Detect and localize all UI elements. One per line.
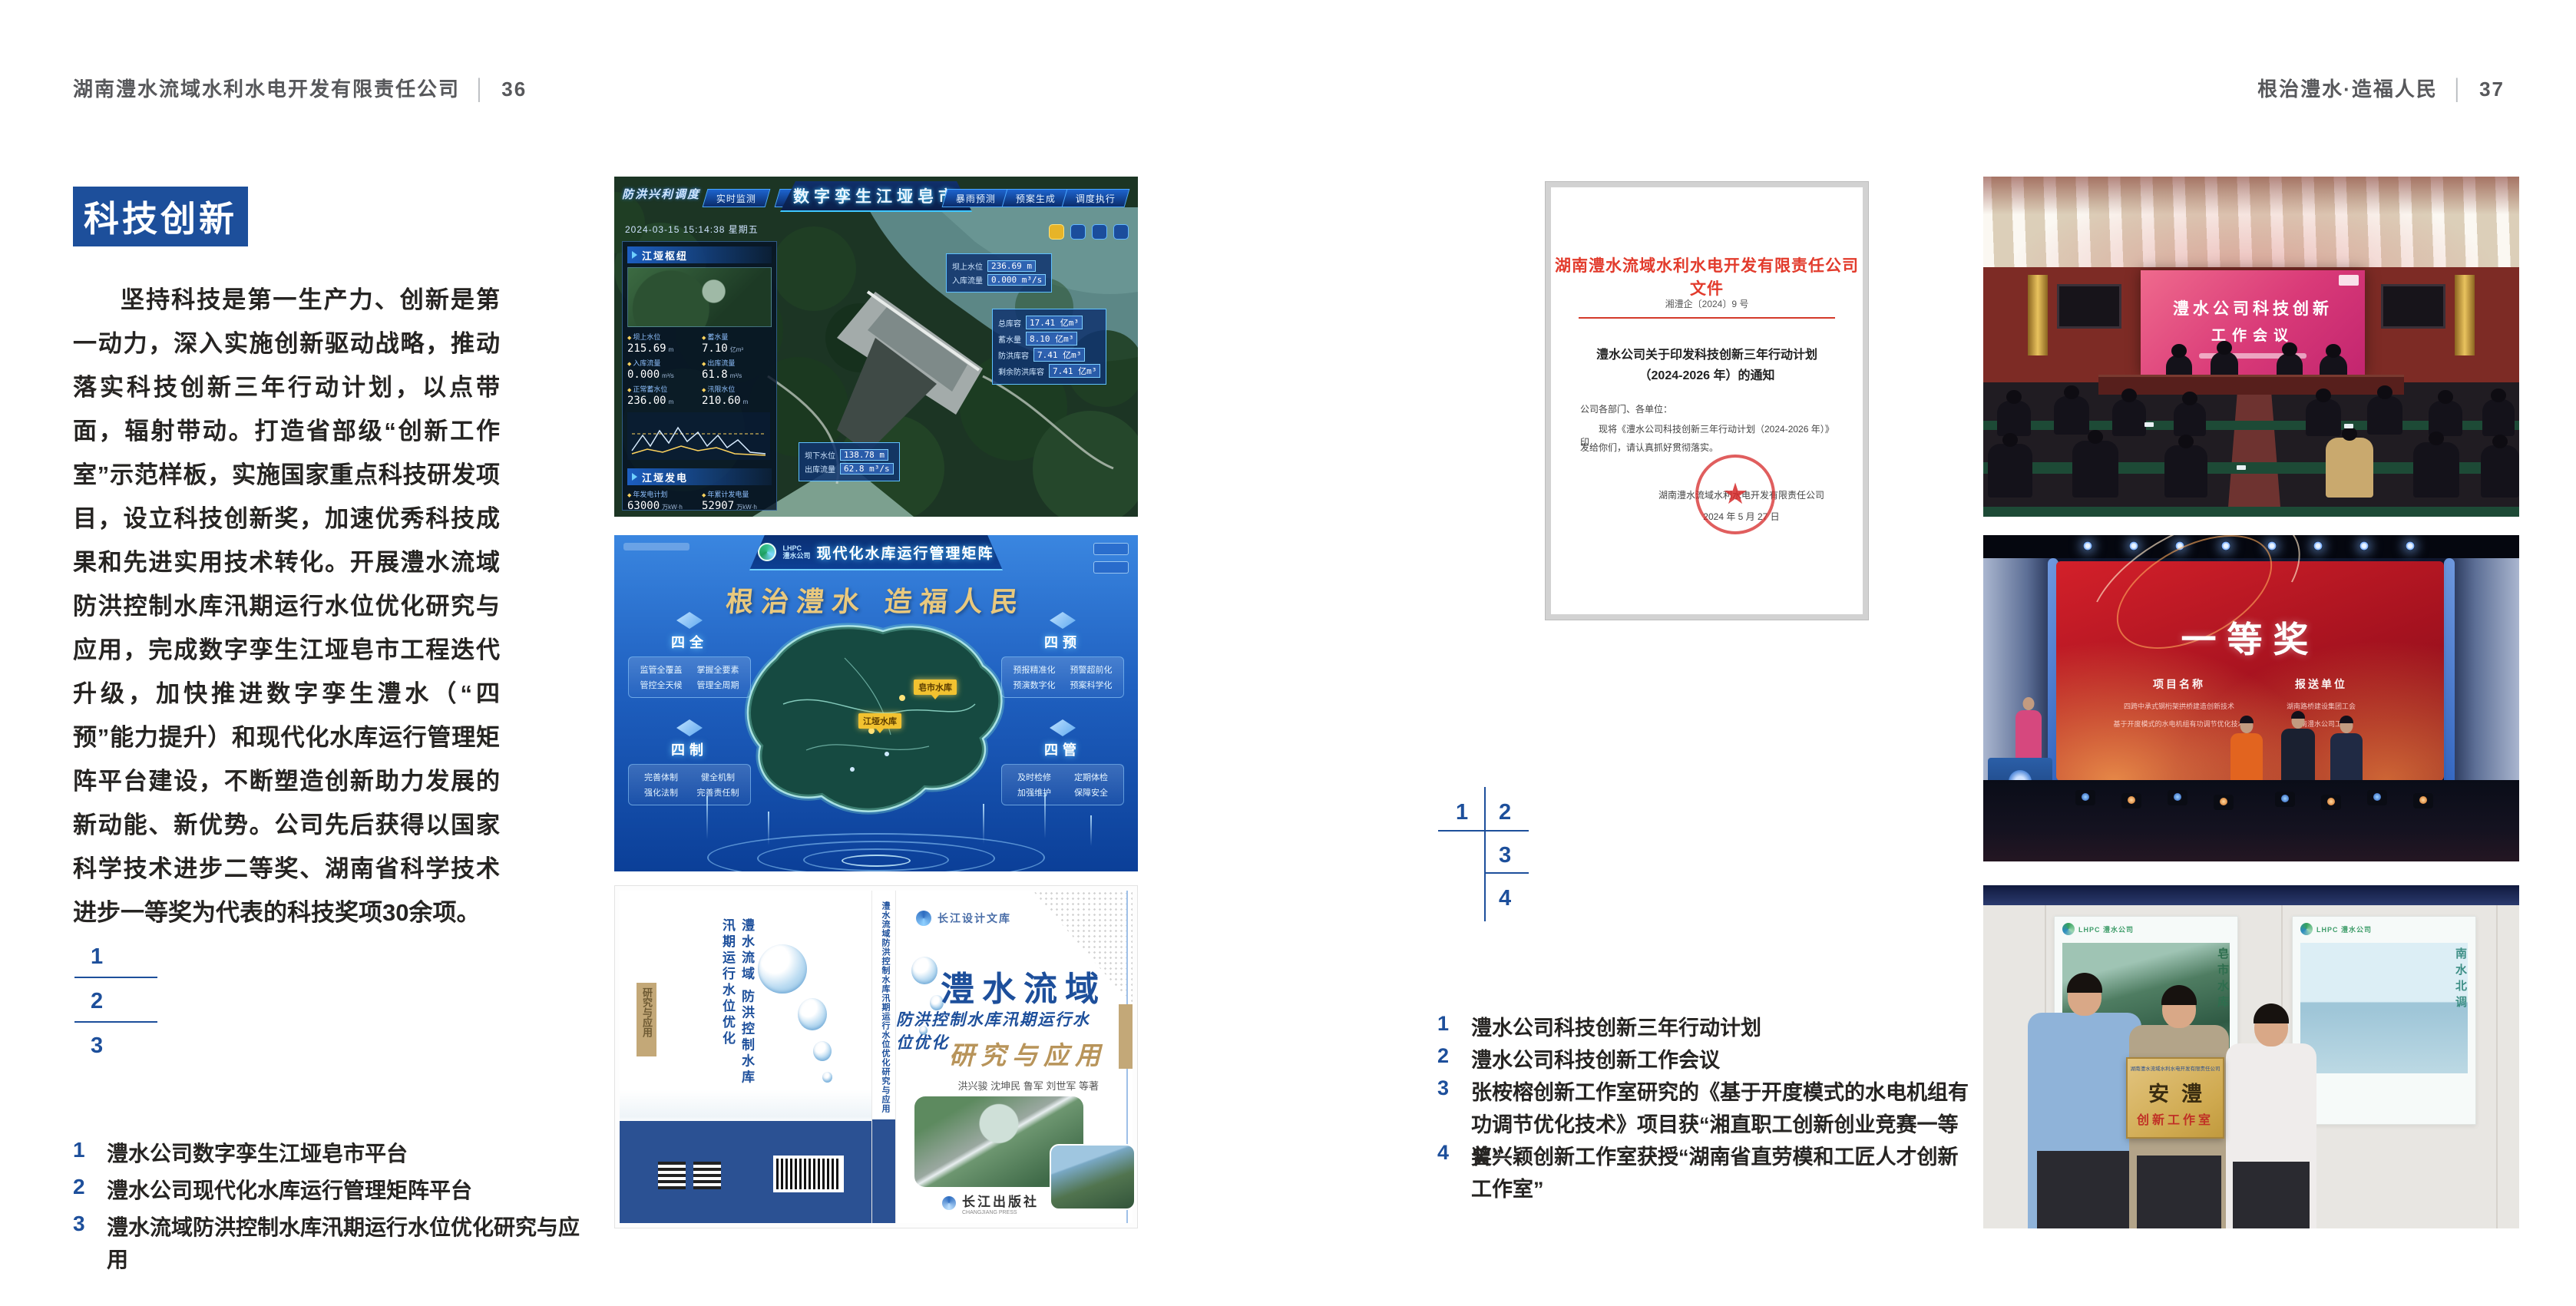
- figure-index-divider: [74, 1021, 157, 1023]
- lhpc-logo-icon: [2300, 923, 2313, 935]
- head-table: [2098, 375, 2404, 395]
- tab-realtime-monitor: 实时监测: [703, 189, 771, 207]
- page-number-right: 37: [2479, 78, 2505, 101]
- audience-silhouette: [2413, 442, 2459, 498]
- dashboard-timestamp: 2024-03-15 15:14:38 星期五: [625, 223, 759, 236]
- water-drop: [798, 998, 827, 1030]
- document-title-line1: 澧水公司关于印发科技创新三年行动计划: [1551, 344, 1863, 362]
- panel-title-hub: 江垭枢纽: [627, 246, 772, 263]
- document-salutation: 公司各部门、各单位：: [1580, 402, 1672, 415]
- figure-award-ceremony: 一等奖 项目名称 四跨中承式钢桁架拱桥建造创新技术 基于开度模式的水电机组有功调…: [1983, 535, 2519, 861]
- seal-star-icon: ★: [1722, 480, 1748, 509]
- matrix-panel-siguan: 四管 及时检修定期体检 加强维护保障安全: [1001, 719, 1124, 805]
- cube-icon: [1050, 719, 1076, 736]
- figure-management-matrix: LHPC澧水公司 现代化水库运行管理矩阵 根治澧水 造福人民 皂市水库 江垭水库…: [614, 535, 1138, 871]
- layers-icon: [1070, 224, 1086, 240]
- stat-cell: 月累计发电量3259.21万kW·h: [627, 515, 697, 517]
- page-motto: 根治澧水·造福人民: [2257, 78, 2438, 101]
- figure-index-2: 2: [1499, 800, 1511, 825]
- poster-right-title: 南水北调: [2453, 947, 2469, 1012]
- settings-icon: [1113, 224, 1129, 240]
- stage-light-fixture: [2121, 793, 2141, 808]
- caption-row: 2 澧水公司现代化水库运行管理矩阵平台: [73, 1175, 564, 1207]
- stage-light-fixture: [2367, 790, 2387, 805]
- water-level-chart: [627, 412, 770, 460]
- caption-number: 3: [73, 1212, 107, 1236]
- tab-plan-generate: 预案生成: [1002, 189, 1070, 207]
- man-left-silhouette: [2028, 1013, 2141, 1228]
- wall-tv: [2057, 284, 2121, 329]
- figure-plaque-photo: LHPC 澧水公司 皂市水库 LHPC 澧水公司 南水北调 湖南澧水流域水利水电…: [1983, 885, 2519, 1228]
- panel-title-power: 江垭发电: [627, 468, 772, 485]
- publisher-logo-icon: [942, 1196, 956, 1210]
- publisher-mark: 长江出版社CHANGJIANG PRESS: [942, 1191, 1039, 1215]
- stage-floor: [1983, 780, 2519, 861]
- award-headline: 一等奖: [2056, 612, 2444, 663]
- caption-text: 澧水公司科技创新三年行动计划: [1471, 1012, 1761, 1044]
- stat-cell: 当前出力0.00MW: [702, 515, 772, 517]
- stage-light-fixture: [2214, 795, 2234, 810]
- light-pin: [1090, 815, 1092, 846]
- caption-row: 1 澧水公司科技创新三年行动计划: [1437, 1012, 1975, 1044]
- figure-digital-twin-dashboard: 防洪兴利调度 实时监测 洪水预报 防洪预警 数字孪生江垭皂市 暴雨预测 预案生成…: [614, 177, 1138, 517]
- matrix-title: 现代化水库运行管理矩阵: [817, 542, 994, 563]
- matrix-panel-siyu: 四预 预报精准化预警超前化 预演数字化预案科学化: [1001, 612, 1124, 698]
- figure-index-3: 3: [1499, 843, 1511, 868]
- right-page-header: 根治澧水·造福人民│37: [2257, 74, 2505, 102]
- header-divider: │: [2452, 78, 2465, 101]
- figure-grid-hline: [1484, 872, 1529, 874]
- audience-silhouette: [2367, 396, 2402, 435]
- ceiling-strip: [1983, 885, 2519, 905]
- caption-number: 2: [1437, 1044, 1471, 1068]
- left-page-header: 湖南澧水流域水利水电开发有限责任公司│36: [73, 74, 527, 102]
- stage-light-fixture: [2168, 790, 2187, 805]
- paper: [2237, 465, 2246, 470]
- lhpc-logo-icon: [2062, 923, 2075, 935]
- audience-silhouette: [2482, 399, 2515, 436]
- figure-index-2: 2: [91, 989, 103, 1014]
- figure-meeting-photo: 澧水公司科技创新 工作会议: [1983, 177, 2519, 517]
- plaque-subtitle: 创新工作室: [2128, 1109, 2223, 1128]
- qr-code: [693, 1162, 721, 1189]
- audience-silhouette-tan: [2326, 438, 2373, 498]
- company-name: 湖南澧水流域水利水电开发有限责任公司: [73, 78, 460, 101]
- power-stats: 年发电计划63000万kW·h 年累计发电量52907万kW·h 月累计发电量3…: [627, 489, 772, 517]
- caption-row: 4 曾兴颖创新工作室获授“湖南省直劳模和工匠人才创新工作室”: [1437, 1141, 1979, 1205]
- audience-silhouette: [2112, 399, 2146, 436]
- dashboard-hud-bar: 防洪兴利调度 实时监测 洪水预报 防洪预警 数字孪生江垭皂市 暴雨预测 预案生成…: [614, 180, 1138, 220]
- wall-seam: [2496, 905, 2498, 1228]
- document-number: 湘澧企〔2024〕9 号: [1551, 297, 1863, 310]
- audience-silhouette: [2072, 441, 2118, 498]
- matrix-timestamp-bar: [623, 543, 689, 551]
- stat-cell: 汛限水位210.60m: [702, 384, 772, 408]
- water-drop: [813, 1041, 832, 1061]
- matrix-button-bottom: [1093, 561, 1129, 574]
- book-authors: 洪兴骏 沈坤民 鲁军 刘世军 等著: [958, 1078, 1099, 1093]
- tab-dispatch-execute: 调度执行: [1062, 189, 1130, 207]
- caption-text: 澧水公司现代化水库运行管理矩阵平台: [107, 1175, 472, 1207]
- plaque-name: 安澧: [2128, 1077, 2223, 1107]
- stage-light-fixture: [2321, 795, 2341, 810]
- cube-icon: [676, 719, 703, 736]
- caption-text: 曾兴颖创新工作室获授“湖南省直劳模和工匠人才创新工作室”: [1471, 1141, 1979, 1205]
- audience-silhouette: [2164, 445, 2207, 498]
- figure-index-1: 1: [91, 944, 103, 970]
- caption-number: 1: [73, 1138, 107, 1162]
- figure-book-cover: 澧水流域 防洪控制水库汛期运行水位优化 研究与应用 澧水流域防洪控制水库汛期运行…: [614, 885, 1138, 1228]
- document-red-rule: [1579, 317, 1835, 319]
- callout-upstream-level: 坝上水位236.69 m 入库流量0.000 m³/s: [946, 253, 1052, 293]
- cube-icon: [1050, 612, 1076, 629]
- matrix-panel-siquan: 四全 监管全覆盖掌握全要素 管控全天候管理全周期: [628, 612, 751, 698]
- dashboard-title: 数字孪生江垭皂市: [780, 181, 972, 212]
- back-cover-vertical-title: 澧水流域 防洪控制水库汛期运行水位优化: [718, 918, 756, 1095]
- stage-light-fixture: [2075, 790, 2095, 805]
- figure-index-4: 4: [1499, 886, 1511, 911]
- dashboard-corner-label: 防洪兴利调度: [622, 186, 700, 202]
- document-body-line2: 发给你们，请认真抓好贯彻落实。: [1580, 441, 1840, 454]
- stat-cell: 蓄水量7.10亿m³: [702, 332, 772, 355]
- audience-silhouette: [2306, 399, 2341, 436]
- caption-text: 澧水流域防洪控制水库汛期运行水位优化研究与应用: [107, 1212, 580, 1276]
- water-drop: [822, 1072, 832, 1083]
- series-logo: 长江设计文库: [916, 911, 1011, 926]
- paper: [2144, 422, 2154, 427]
- matrix-button-top: [1093, 543, 1129, 555]
- red-seal: ★: [1695, 455, 1775, 534]
- header-divider: │: [474, 78, 488, 101]
- audience-silhouette: [2481, 445, 2519, 498]
- wall-tv: [2381, 284, 2445, 329]
- front-tan-tag: [1119, 1004, 1133, 1069]
- caption-row: 1 澧水公司数字孪生江垭皂市平台: [73, 1138, 564, 1170]
- hub-stats: 坝上水位215.69m 蓄水量7.10亿m³ 入库流量0.000m³/s 出库流…: [627, 332, 772, 408]
- caption-number: 2: [73, 1175, 107, 1199]
- screen-logo: [2339, 275, 2359, 286]
- caption-number: 3: [1437, 1076, 1471, 1100]
- screen-title-line1: 澧水公司科技创新: [2141, 296, 2365, 319]
- globe-icon: [916, 911, 931, 926]
- glow-column: [2444, 558, 2455, 815]
- book-title-main: 澧水流域: [941, 961, 1106, 1010]
- light-pin: [706, 796, 708, 839]
- water-drop: [758, 944, 807, 994]
- document-title-line2: （2024-2026 年）的通知: [1551, 365, 1863, 383]
- gold-pillar: [2455, 275, 2475, 355]
- spine-blue-band: [872, 1119, 895, 1223]
- caption-row: 3 澧水流域防洪控制水库汛期运行水位优化研究与应用: [73, 1212, 580, 1276]
- cube-icon: [676, 612, 703, 629]
- caption-text: 澧水公司数字孪生江垭皂市平台: [107, 1138, 408, 1170]
- audience-silhouette: [1997, 401, 2031, 436]
- figure-index-3: 3: [91, 1033, 103, 1059]
- caption-number: 1: [1437, 1012, 1471, 1036]
- body-paragraph: 坚持科技是第一生产力、创新是第一动力，深入实施创新驱动战略，推动落实科技创新三年…: [73, 278, 500, 934]
- audience-desk-row: [1983, 507, 2519, 517]
- light-pin: [1044, 792, 1046, 838]
- light-pin: [983, 804, 984, 844]
- dashboard-left-panel: 江垭枢纽 坝上水位215.69m 蓄水量7.10亿m³ 入库流量0.000m³/…: [622, 241, 777, 511]
- caption-text: 澧水公司科技创新工作会议: [1471, 1044, 1720, 1076]
- book-spine: 澧水流域防洪控制水库汛期运行水位优化研究与应用: [871, 891, 896, 1223]
- innovation-studio-plaque: 湖南澧水流域水利水电开发有限责任公司 安澧 创新工作室: [2126, 1057, 2224, 1139]
- matrix-panel-sizhi: 四制 完善体制健全机制 强化法制完善责任制: [628, 719, 751, 805]
- caption-row: 2 澧水公司科技创新工作会议: [1437, 1044, 1975, 1076]
- stage-light-fixture: [2413, 793, 2433, 808]
- gold-pillar: [2028, 275, 2048, 355]
- book-title-tail: 研究与应用: [949, 1035, 1106, 1072]
- stat-cell: 正常蓄水位236.00m: [627, 384, 697, 408]
- barcode: [773, 1156, 844, 1192]
- locate-icon: [1092, 224, 1107, 240]
- award-unit-column: 报送单位 湖南路桥建设集团工会 湖南澧水公司工会: [2237, 676, 2406, 736]
- paper: [2344, 424, 2353, 428]
- map-tag-jiangya: 江垭水库: [858, 713, 901, 729]
- caption-number: 4: [1437, 1141, 1471, 1165]
- woman-right-silhouette: [2226, 1043, 2316, 1228]
- stat-cell: 坝上水位215.69m: [627, 332, 697, 355]
- plaque-org-line: 湖南澧水流域水利水电开发有限责任公司: [2128, 1064, 2223, 1072]
- poster-left-title: 皂市水库: [2215, 947, 2231, 1012]
- audience-silhouette: [2054, 396, 2089, 435]
- figure-grid-hline: [1438, 830, 1529, 832]
- audience-silhouette: [2429, 401, 2462, 436]
- dashboard-toolbar-icons: [1049, 224, 1129, 240]
- audience-silhouette: [2174, 402, 2206, 436]
- poster-right-photo: [2300, 943, 2468, 1073]
- stat-cell: 年发电计划63000万kW·h: [627, 489, 697, 513]
- callout-downstream-level: 坝下水位138.78 m 出库流量62.8 m³/s: [799, 442, 900, 481]
- stage-light-fixture: [2275, 792, 2295, 807]
- water-drop: [911, 957, 937, 984]
- tab-rain-forecast: 暴雨预测: [942, 189, 1010, 207]
- figure-official-document: 湖南澧水流域水利水电开发有限责任公司文件 湘澧企〔2024〕9 号 澧水公司关于…: [1546, 182, 1868, 620]
- section-title-badge: 科技创新: [73, 187, 248, 246]
- audience-silhouette: [1988, 444, 2032, 498]
- user-icon: [1049, 224, 1064, 240]
- poster-right: LHPC 澧水公司 南水北调: [2292, 916, 2476, 1125]
- screen-title-line2: 工作会议: [2141, 324, 2365, 345]
- stat-cell: 出库流量61.8m³/s: [702, 358, 772, 382]
- page-number-left: 36: [501, 78, 527, 101]
- lhpc-logo-text: LHPC澧水公司: [782, 544, 810, 560]
- ripple-ring: [842, 855, 911, 867]
- stat-cell: 年累计发电量52907万kW·h: [702, 489, 772, 513]
- map-tag-zaoshi: 皂市水库: [914, 679, 957, 695]
- qr-code: [658, 1162, 686, 1189]
- figure-index-divider: [74, 977, 157, 978]
- lhpc-logo-icon: [758, 543, 776, 561]
- dam-photo-small: [1050, 1144, 1136, 1210]
- spine-title: 澧水流域防洪控制水库汛期运行水位优化研究与应用: [879, 901, 891, 1132]
- back-cover-tan-tag: 研究与应用: [637, 983, 656, 1056]
- stat-cell: 入库流量0.000m³/s: [627, 358, 697, 382]
- figure-index-1: 1: [1456, 800, 1468, 825]
- document-red-header: 湖南澧水流域水利水电开发有限责任公司文件: [1551, 253, 1863, 299]
- matrix-header: LHPC澧水公司 现代化水库运行管理矩阵: [749, 535, 1003, 570]
- light-pin: [768, 812, 769, 845]
- dam-thumbnail: [627, 267, 772, 327]
- figure-grid-vline: [1484, 787, 1486, 921]
- book-front-cover: 长江设计文库 澧水流域 防洪控制水库汛期运行水位优化 研究与应用 洪兴骏 沈坤民…: [896, 891, 1133, 1223]
- center-aisle: [2227, 395, 2281, 517]
- book-back-cover: 澧水流域 防洪控制水库汛期运行水位优化 研究与应用: [620, 891, 871, 1223]
- callout-reservoir-capacity: 总库容17.41 亿m³ 蓄水量8.10 亿m³ 防洪库容7.41 亿m³ 剩余…: [992, 309, 1106, 385]
